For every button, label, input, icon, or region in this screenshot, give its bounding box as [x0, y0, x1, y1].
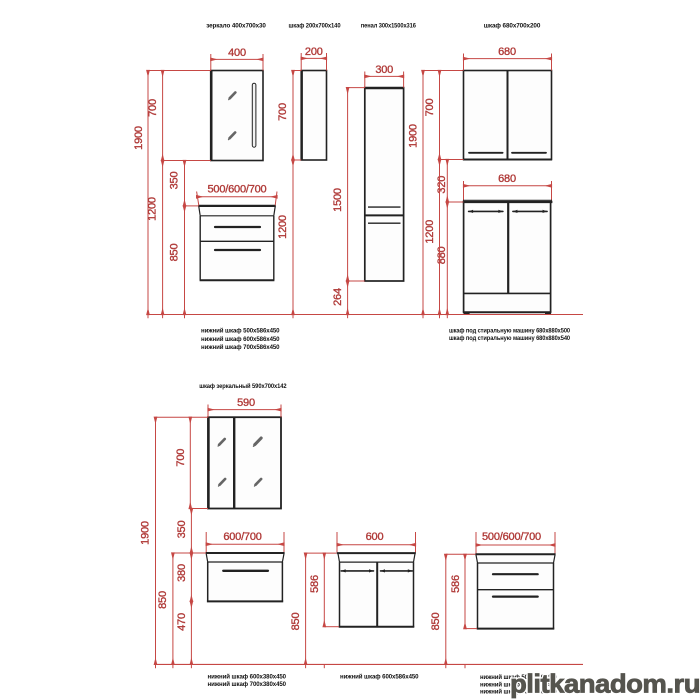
svg-text:зеркало 400х700х30: зеркало 400х700х30 — [206, 23, 266, 30]
svg-text:нижний шкаф 700х586х450: нижний шкаф 700х586х450 — [201, 343, 280, 351]
svg-text:600: 600 — [366, 531, 384, 543]
svg-text:шкаф под стиральную машину 680: шкаф под стиральную машину 680х880х500 — [449, 327, 570, 334]
svg-text:350: 350 — [169, 172, 181, 190]
svg-text:850: 850 — [430, 613, 442, 631]
svg-text:850: 850 — [157, 591, 169, 609]
svg-text:1200: 1200 — [147, 197, 159, 221]
svg-text:шкаф зеркальный 590х700х142: шкаф зеркальный 590х700х142 — [199, 382, 287, 390]
svg-text:500/600/700: 500/600/700 — [208, 184, 267, 196]
svg-text:нижний шкаф 600х586х450: нижний шкаф 600х586х450 — [340, 673, 419, 681]
svg-text:700: 700 — [175, 449, 187, 467]
svg-text:1900: 1900 — [140, 521, 152, 545]
svg-text:850: 850 — [290, 613, 302, 631]
svg-text:plitkanadom.ru: plitkanadom.ru — [510, 669, 700, 699]
svg-text:шкаф под стиральную машину 680: шкаф под стиральную машину 680х880х540 — [449, 335, 570, 342]
svg-text:1200: 1200 — [424, 220, 436, 244]
svg-text:590: 590 — [237, 397, 255, 409]
svg-text:850: 850 — [169, 244, 181, 262]
svg-text:нижний шкаф 500х586х450: нижний шкаф 500х586х450 — [201, 326, 280, 334]
svg-text:700: 700 — [277, 103, 289, 121]
svg-text:нижний шкаф 700х380х450: нижний шкаф 700х380х450 — [208, 680, 287, 688]
svg-text:700: 700 — [424, 99, 436, 117]
svg-text:320: 320 — [436, 176, 448, 194]
svg-text:400: 400 — [228, 47, 246, 59]
svg-text:300: 300 — [375, 64, 393, 76]
svg-text:1900: 1900 — [133, 126, 145, 150]
svg-text:380: 380 — [176, 564, 188, 582]
svg-text:нижний шкаф 600х586х450: нижний шкаф 600х586х450 — [201, 335, 280, 343]
svg-text:680: 680 — [498, 46, 516, 58]
svg-text:586: 586 — [309, 575, 321, 593]
svg-text:нижний шкаф 600х380х450: нижний шкаф 600х380х450 — [208, 673, 287, 681]
svg-text:700: 700 — [147, 99, 159, 117]
svg-text:шкаф 200х700х140: шкаф 200х700х140 — [289, 23, 341, 30]
svg-text:880: 880 — [436, 246, 448, 264]
svg-text:470: 470 — [176, 613, 188, 631]
svg-text:350: 350 — [176, 521, 188, 539]
svg-text:1900: 1900 — [408, 124, 420, 148]
svg-text:1200: 1200 — [277, 215, 289, 239]
svg-text:пенал 300х1500х316: пенал 300х1500х316 — [361, 23, 416, 30]
svg-text:500/600/700: 500/600/700 — [482, 531, 541, 543]
svg-text:600/700: 600/700 — [223, 531, 261, 543]
svg-text:586: 586 — [450, 575, 462, 593]
svg-text:264: 264 — [332, 288, 344, 306]
svg-text:680: 680 — [498, 173, 516, 185]
svg-text:1500: 1500 — [332, 188, 344, 212]
svg-text:шкаф 680х700х200: шкаф 680х700х200 — [484, 23, 541, 30]
svg-text:200: 200 — [305, 46, 323, 58]
